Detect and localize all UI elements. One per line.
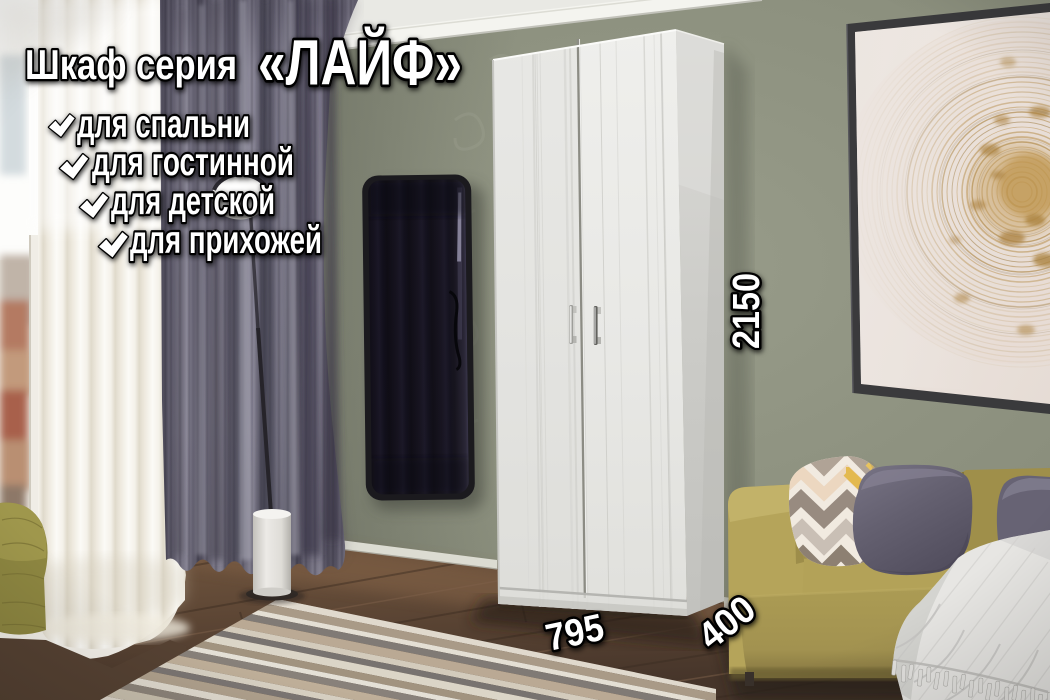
svg-text:«ЛАЙФ»: «ЛАЙФ» [258, 26, 462, 99]
svg-text:для гостинной: для гостинной [92, 141, 294, 184]
svg-text:для спальни: для спальни [77, 103, 250, 146]
svg-text:2150: 2150 [726, 273, 768, 349]
svg-text:для прихожей: для прихожей [130, 219, 322, 262]
svg-text:для детской: для детской [111, 180, 275, 223]
svg-text:Шкаф серия: Шкаф серия [25, 41, 237, 88]
